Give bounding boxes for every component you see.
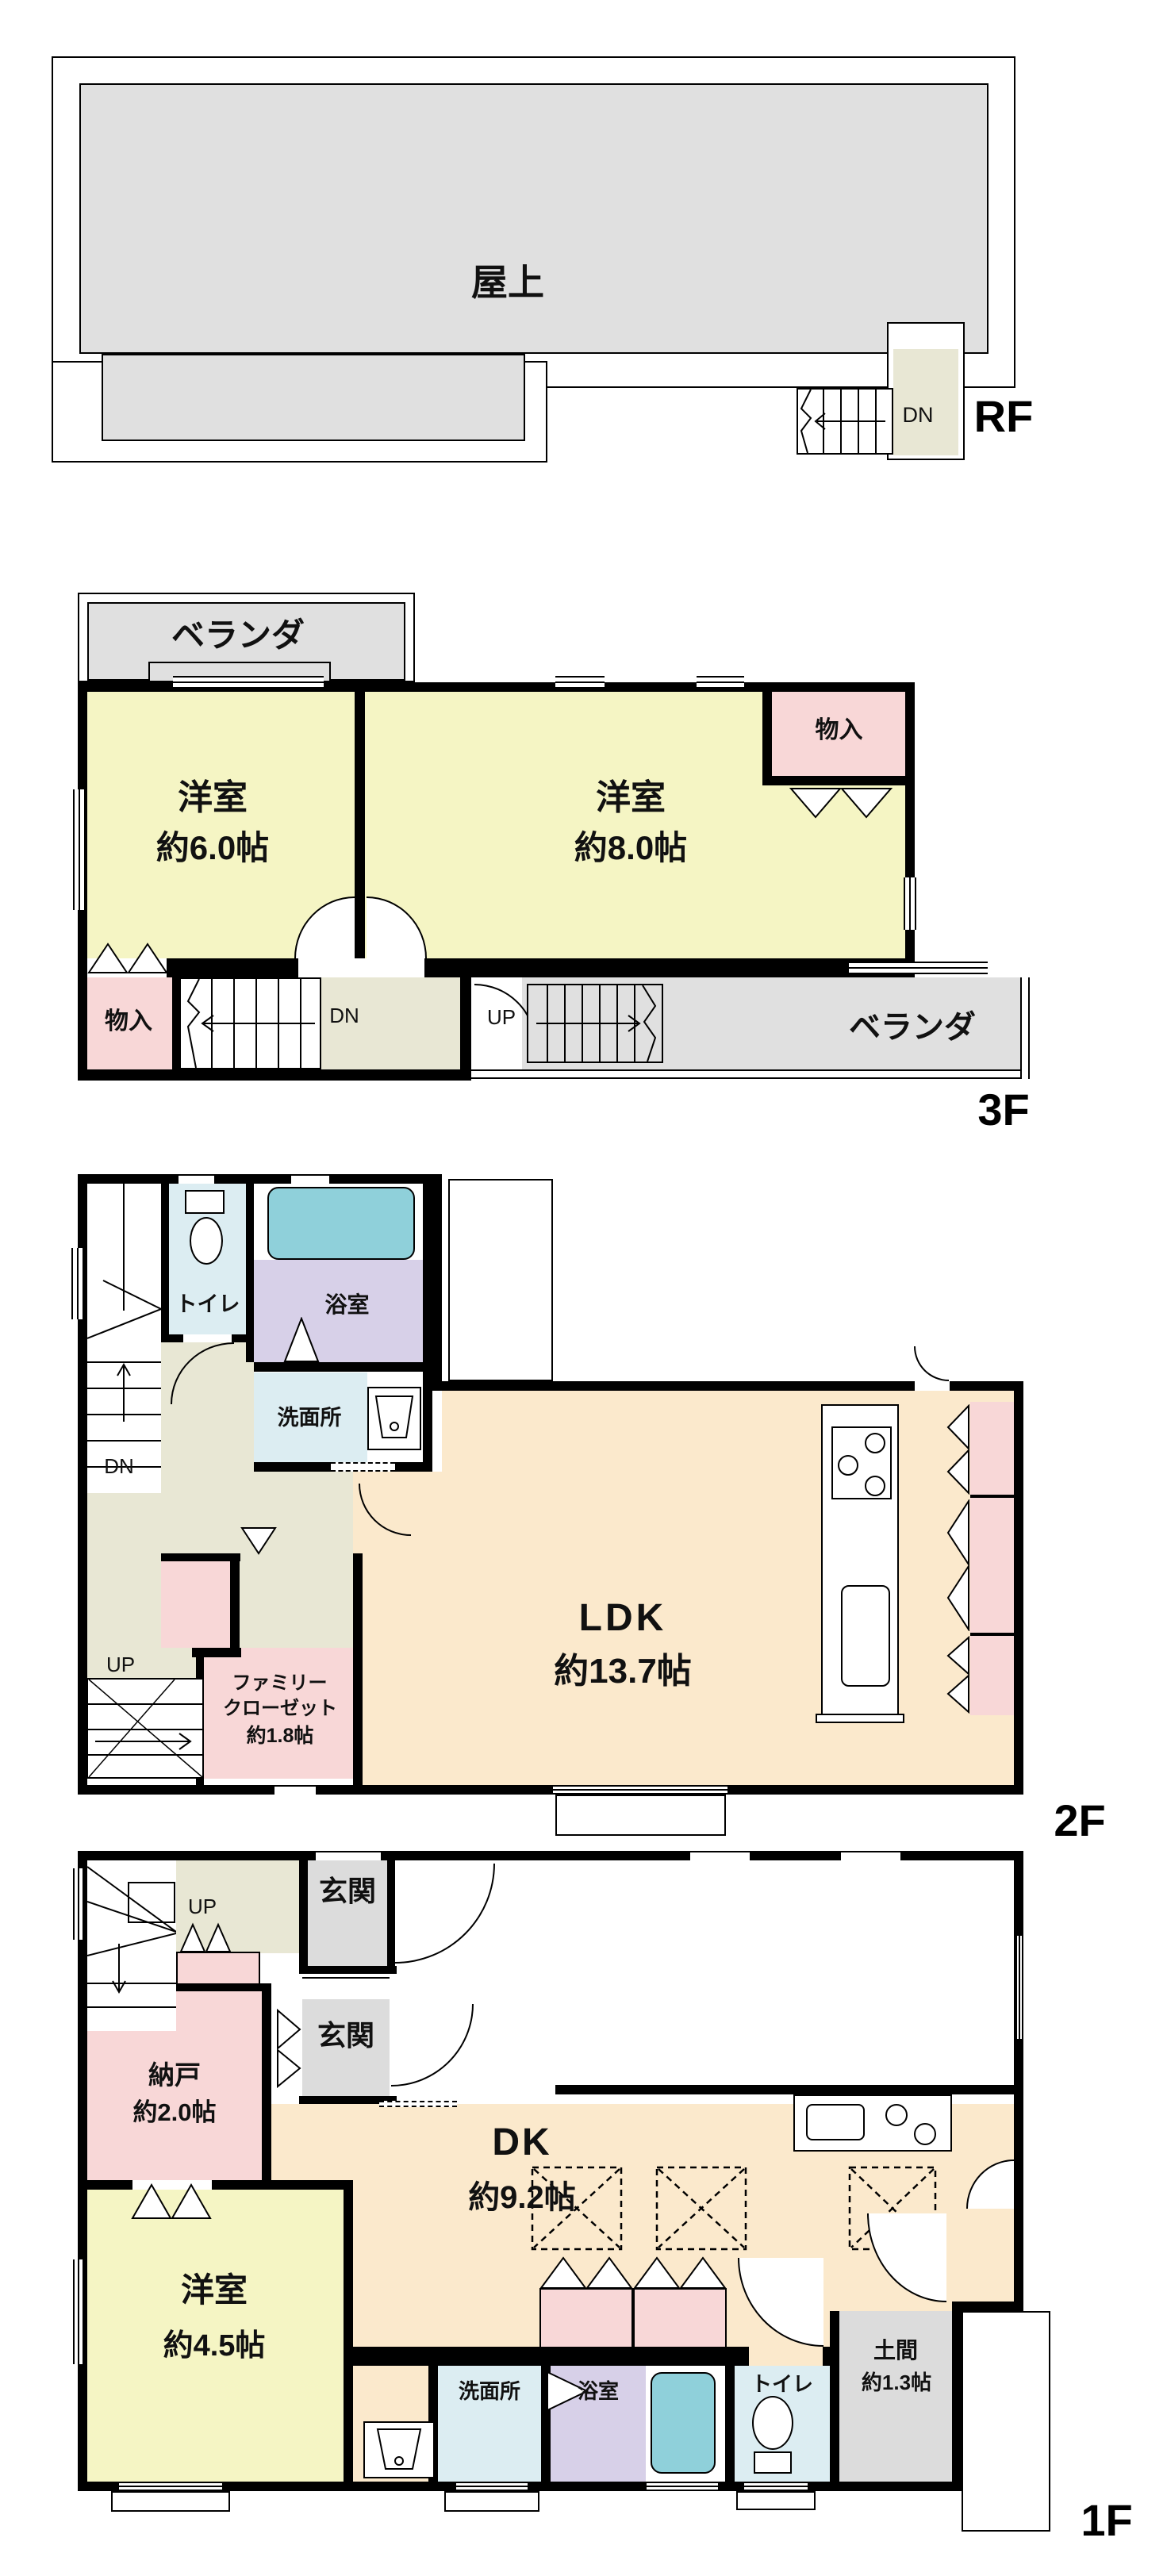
ldk-label: LDK	[547, 1595, 698, 1642]
wall	[353, 1553, 363, 1785]
room-label: 洋室	[125, 777, 300, 819]
room-rooftop	[79, 83, 988, 354]
window	[697, 676, 744, 689]
window	[456, 2482, 528, 2491]
sink-icon	[806, 2104, 865, 2140]
door-arc	[391, 2004, 474, 2087]
toilet-icon	[190, 1217, 223, 1265]
window	[291, 1176, 329, 1184]
toilet-label: トイレ	[168, 1290, 248, 1320]
dk-size-label: 約9.2帖	[427, 2177, 617, 2218]
toilet-tank-icon	[754, 2451, 792, 2474]
bathtub-icon	[267, 1187, 415, 1260]
sink-icon	[841, 1585, 890, 1687]
bathtub-icon	[651, 2372, 716, 2474]
family-closet-label: クローゼット	[205, 1696, 355, 1722]
wall	[1014, 1381, 1023, 1795]
doma-label: 土間	[850, 2336, 941, 2366]
room-size-label: 約8.0帖	[524, 828, 738, 868]
folding-door-icon	[282, 1317, 321, 1363]
window	[71, 1248, 84, 1319]
stairs-icon	[180, 977, 321, 1069]
burner-icon	[865, 1433, 885, 1453]
storeroom-label: 納戸	[95, 2058, 254, 2093]
door-arc	[914, 1346, 949, 1381]
window	[73, 1868, 84, 1940]
wall	[555, 2085, 1023, 2094]
window	[1015, 1936, 1023, 2039]
porch	[962, 2311, 1050, 2532]
wall	[78, 1851, 87, 2491]
1f-floor-label: 1F	[1055, 2493, 1158, 2548]
wall	[344, 2347, 749, 2366]
dashed-opening	[331, 1462, 395, 1472]
window	[179, 1176, 214, 1184]
wall	[299, 1860, 308, 1966]
washbasin-bowl-icon	[373, 1393, 416, 1444]
dn-label: DN	[94, 1452, 144, 1480]
veranda-bottom-edge	[471, 1069, 1020, 1079]
window	[849, 962, 988, 974]
bifold-door-icon	[945, 1636, 970, 1714]
door-opening	[915, 1381, 950, 1391]
wall	[87, 2180, 132, 2190]
wall	[78, 1069, 471, 1081]
window-bay	[555, 1795, 726, 1836]
window	[841, 1852, 900, 1860]
window	[73, 2259, 84, 2364]
closet-column-2f	[970, 1402, 1014, 1715]
wall	[78, 1785, 1023, 1795]
stairs-icon	[87, 1184, 161, 1493]
toilet-tank-icon	[185, 1190, 225, 1214]
rooftop-label: 屋上	[413, 259, 603, 306]
window	[690, 1852, 750, 1860]
washroom-label: 洗面所	[436, 2377, 543, 2405]
burner-icon	[865, 1476, 885, 1496]
room-label: 洋室	[543, 777, 718, 819]
window	[555, 676, 605, 689]
lower-roof-outline	[448, 1179, 553, 1381]
wall	[970, 1495, 1014, 1498]
floor-plan-canvas: 屋上 DN RF ベランダ	[0, 0, 1167, 2576]
wall	[78, 977, 87, 1079]
wall	[262, 1991, 271, 2180]
wall	[762, 776, 905, 785]
wall	[762, 692, 772, 785]
bifold-door-icon	[276, 2009, 303, 2088]
window-sill	[736, 2491, 816, 2510]
wall	[905, 682, 915, 977]
window	[553, 1785, 727, 1795]
wall	[230, 1561, 240, 1650]
wall	[78, 1174, 442, 1184]
window	[119, 2482, 222, 2491]
wall	[460, 977, 471, 1069]
door-opening	[316, 1852, 381, 1860]
burner-icon	[838, 1455, 858, 1476]
up-label: UP	[95, 1650, 146, 1679]
room-label: 洋室	[127, 2271, 301, 2310]
wall	[299, 1966, 397, 1974]
storeroom-size-label: 約2.0帖	[90, 2096, 259, 2129]
stairs-icon	[87, 1860, 176, 2031]
bifold-door-icon	[179, 1921, 232, 1953]
cabinet	[633, 2288, 727, 2348]
family-closet-label: ファミリー	[218, 1671, 341, 1696]
rf-dn-label: DN	[890, 401, 946, 430]
toilet-label: トイレ	[735, 2371, 830, 2397]
family-closet-size-label: 約1.8帖	[228, 1723, 332, 1750]
door-arc	[395, 1864, 495, 1964]
counter-ledge	[816, 1714, 904, 1723]
closet-label: 物入	[781, 712, 896, 747]
3f-floor-label: 3F	[952, 1082, 1055, 1138]
veranda-right-edge	[1020, 977, 1030, 1079]
hall-2f	[232, 1553, 363, 1648]
dn-label: DN	[316, 1001, 373, 1030]
washroom-label: 洗面所	[254, 1404, 365, 1433]
rf-floor-label: RF	[952, 389, 1055, 444]
2f-floor-label: 2F	[1028, 1793, 1131, 1849]
cabinet	[539, 2288, 633, 2348]
wall	[161, 1334, 183, 1342]
wall	[167, 958, 298, 977]
up-label: UP	[179, 1893, 225, 1920]
dashed-opening	[379, 2101, 457, 2107]
wall	[830, 2311, 839, 2482]
window-sill	[444, 2491, 539, 2512]
wall	[387, 1860, 395, 1966]
window	[904, 877, 916, 930]
veranda-bottom-label: ベランダ	[825, 1009, 1000, 1046]
room-ldk	[442, 1391, 1014, 1785]
closet-door-icon	[240, 1526, 277, 1555]
burner-icon	[914, 2123, 936, 2145]
wall	[192, 1648, 241, 1657]
dk-label: DK	[470, 2120, 574, 2166]
floor-rf: 屋上 DN RF	[0, 0, 1167, 508]
stairs-icon	[797, 388, 893, 455]
stairs-icon	[87, 1678, 204, 1779]
wall	[952, 2302, 1023, 2311]
bath-label: 浴室	[554, 2377, 643, 2405]
wall	[725, 2366, 735, 2482]
bifold-door-icon	[789, 785, 894, 820]
room-rooftop-lower	[102, 354, 525, 441]
window-sill	[111, 2491, 230, 2512]
bifold-door-icon	[87, 941, 168, 974]
wall	[344, 2190, 353, 2482]
wall	[423, 1184, 432, 1472]
entrance-label: 玄関	[308, 1874, 387, 1909]
toilet-icon	[752, 2396, 793, 2450]
closet-label: 物入	[89, 1004, 168, 1038]
room-size-label: 約4.5帖	[115, 2328, 313, 2366]
bifold-door-icon	[945, 1404, 970, 1495]
window	[173, 676, 324, 689]
closet-family-upper	[161, 1561, 230, 1648]
wall	[172, 977, 180, 1069]
wall	[432, 1184, 442, 1391]
wall	[952, 2302, 962, 2491]
wall	[355, 692, 365, 958]
window	[274, 1787, 316, 1795]
ldk-size-label: 約13.7帖	[514, 1649, 731, 1695]
doma-size-label: 約1.3帖	[843, 2369, 950, 2396]
window	[647, 2482, 718, 2491]
wall	[424, 958, 908, 977]
closet-strip-1f	[176, 1952, 260, 1987]
bath-label: 浴室	[305, 1290, 389, 1320]
bifold-door-icon	[131, 2182, 213, 2220]
wall	[161, 1553, 240, 1561]
veranda-top-label: ベランダ	[151, 616, 325, 655]
bifold-door-icon	[945, 1499, 970, 1631]
window	[744, 2482, 808, 2491]
entrance-step	[302, 1977, 390, 1983]
floor-hatch-icon	[655, 2166, 747, 2251]
entrance-label: 玄関	[303, 2018, 389, 2053]
burner-icon	[885, 2104, 908, 2126]
wall	[232, 1334, 254, 1342]
stairs-icon	[527, 984, 663, 1063]
up-label: UP	[476, 1003, 527, 1031]
bifold-door-icon	[539, 2255, 727, 2290]
room-size-label: 約6.0帖	[106, 828, 320, 868]
laundry-pan-bowl-icon	[368, 2426, 430, 2474]
wall	[254, 1362, 423, 1372]
wall	[1014, 1851, 1023, 2311]
wall	[970, 1633, 1014, 1636]
wall	[212, 2180, 353, 2190]
window	[73, 789, 86, 910]
